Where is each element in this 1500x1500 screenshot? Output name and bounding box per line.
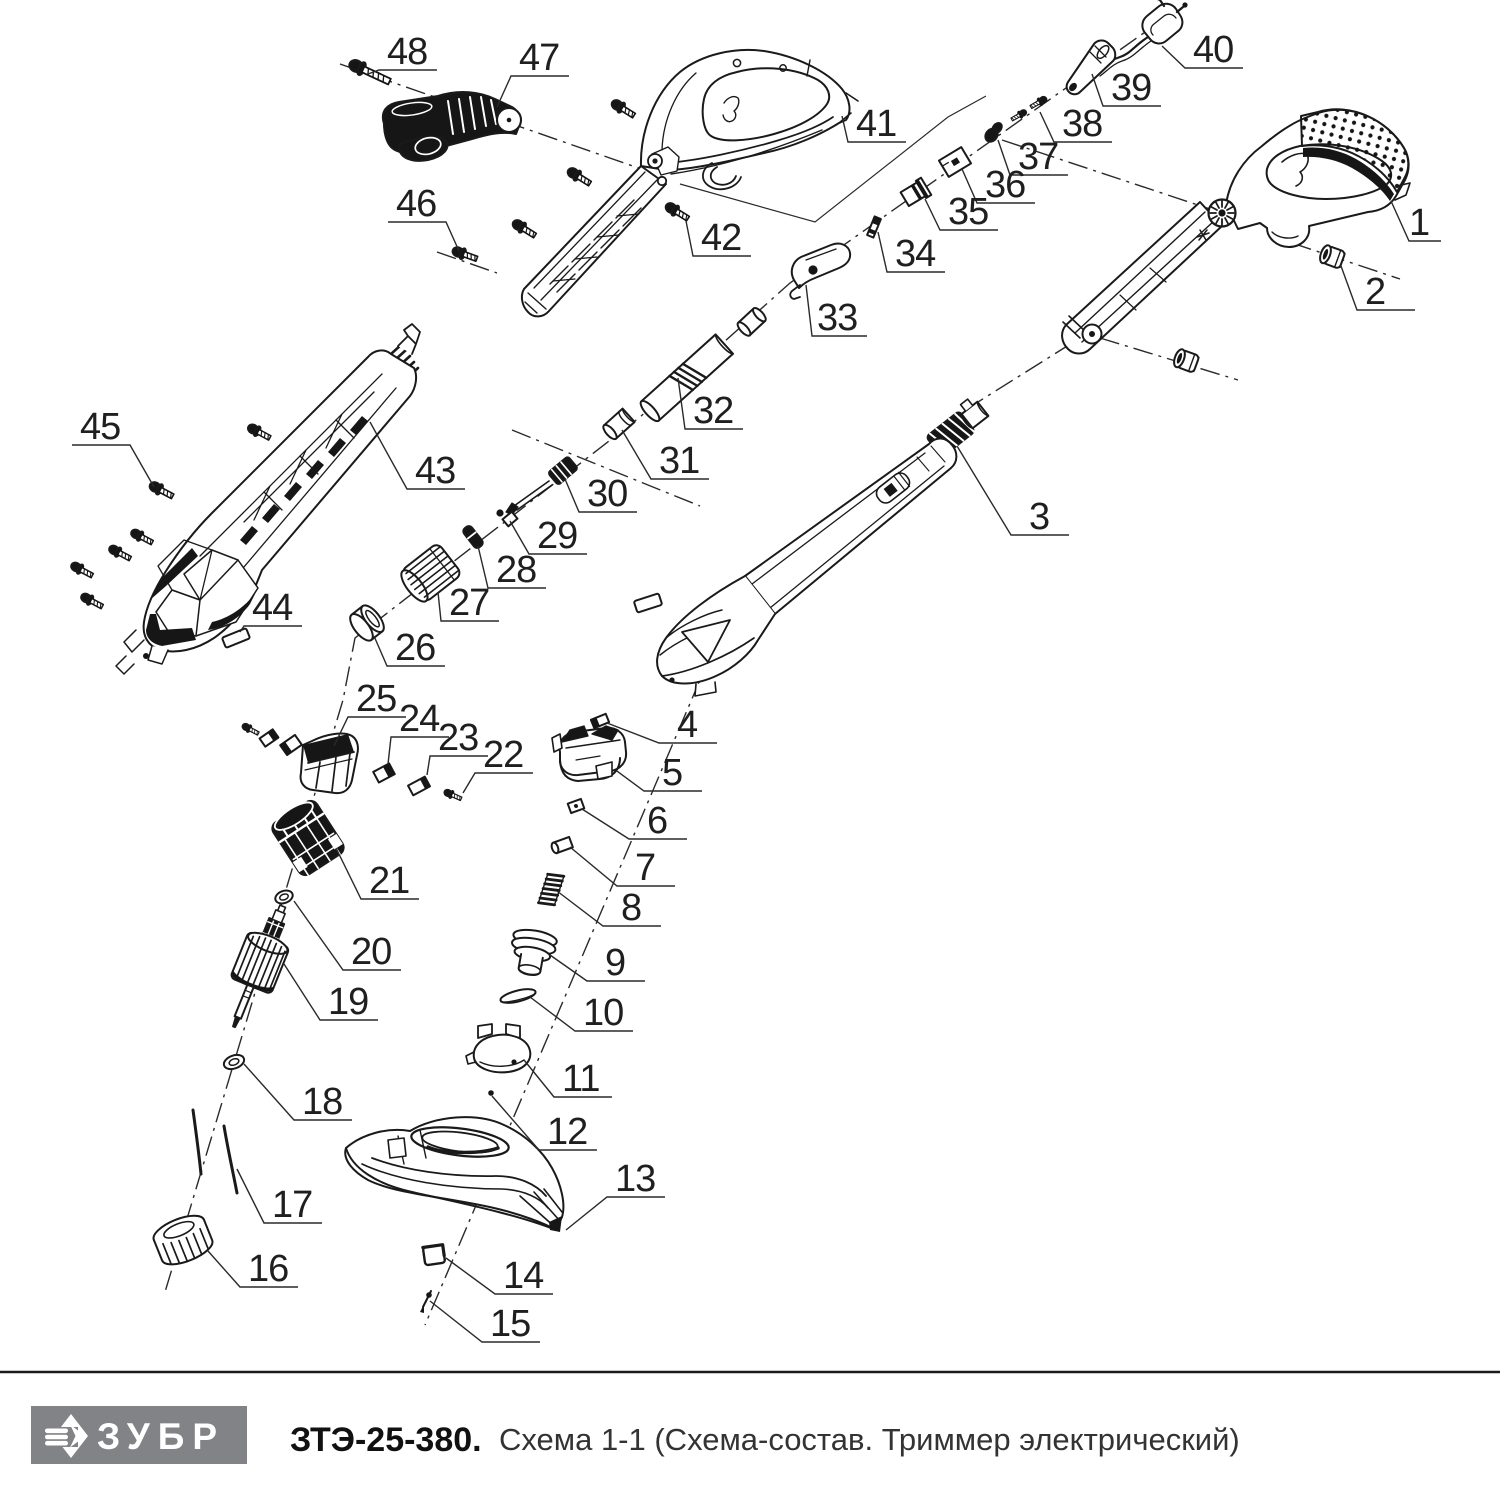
svg-text:32: 32 (693, 390, 733, 432)
svg-text:24: 24 (399, 698, 440, 740)
svg-text:6: 6 (647, 800, 667, 842)
svg-text:42: 42 (701, 217, 741, 259)
svg-text:ЗТЭ-25-380.: ЗТЭ-25-380. (290, 1421, 482, 1459)
svg-text:8: 8 (621, 887, 641, 929)
svg-text:17: 17 (272, 1184, 312, 1226)
svg-text:10: 10 (583, 992, 623, 1034)
svg-text:43: 43 (415, 450, 455, 492)
svg-text:27: 27 (449, 582, 489, 624)
svg-text:41: 41 (856, 103, 896, 145)
svg-text:16: 16 (248, 1248, 288, 1290)
svg-text:11: 11 (562, 1058, 599, 1100)
svg-text:15: 15 (490, 1303, 530, 1345)
svg-text:44: 44 (252, 587, 293, 629)
svg-text:21: 21 (369, 860, 409, 902)
svg-text:23: 23 (438, 717, 478, 759)
svg-text:33: 33 (817, 297, 857, 339)
svg-text:40: 40 (1193, 29, 1233, 71)
svg-text:28: 28 (496, 549, 536, 591)
svg-text:45: 45 (80, 406, 120, 448)
svg-text:1: 1 (1409, 202, 1429, 244)
svg-text:25: 25 (356, 678, 396, 720)
svg-text:14: 14 (503, 1255, 544, 1297)
svg-text:48: 48 (387, 31, 427, 73)
svg-text:30: 30 (587, 473, 627, 515)
svg-text:18: 18 (302, 1081, 342, 1123)
svg-text:4: 4 (677, 704, 698, 746)
svg-text:35: 35 (948, 191, 988, 233)
svg-text:47: 47 (519, 37, 559, 79)
svg-text:19: 19 (328, 981, 368, 1023)
svg-text:34: 34 (895, 233, 936, 275)
svg-text:39: 39 (1111, 67, 1151, 109)
svg-text:9: 9 (605, 942, 625, 984)
svg-text:46: 46 (396, 183, 436, 225)
svg-text:7: 7 (635, 847, 655, 889)
svg-text:38: 38 (1062, 103, 1102, 145)
svg-text:31: 31 (659, 440, 699, 482)
svg-text:13: 13 (615, 1158, 655, 1200)
svg-text:ЗУБР: ЗУБР (97, 1416, 225, 1457)
svg-text:20: 20 (351, 931, 391, 973)
svg-text:5: 5 (662, 752, 682, 794)
svg-text:36: 36 (985, 164, 1025, 206)
svg-text:Схема 1-1 (Схема-состав. Тримм: Схема 1-1 (Схема-состав. Триммер электри… (499, 1422, 1240, 1457)
svg-text:26: 26 (395, 627, 435, 669)
svg-text:22: 22 (483, 734, 523, 776)
svg-text:29: 29 (537, 515, 577, 557)
svg-text:12: 12 (547, 1111, 587, 1153)
svg-text:3: 3 (1029, 496, 1049, 538)
svg-text:2: 2 (1365, 271, 1385, 313)
